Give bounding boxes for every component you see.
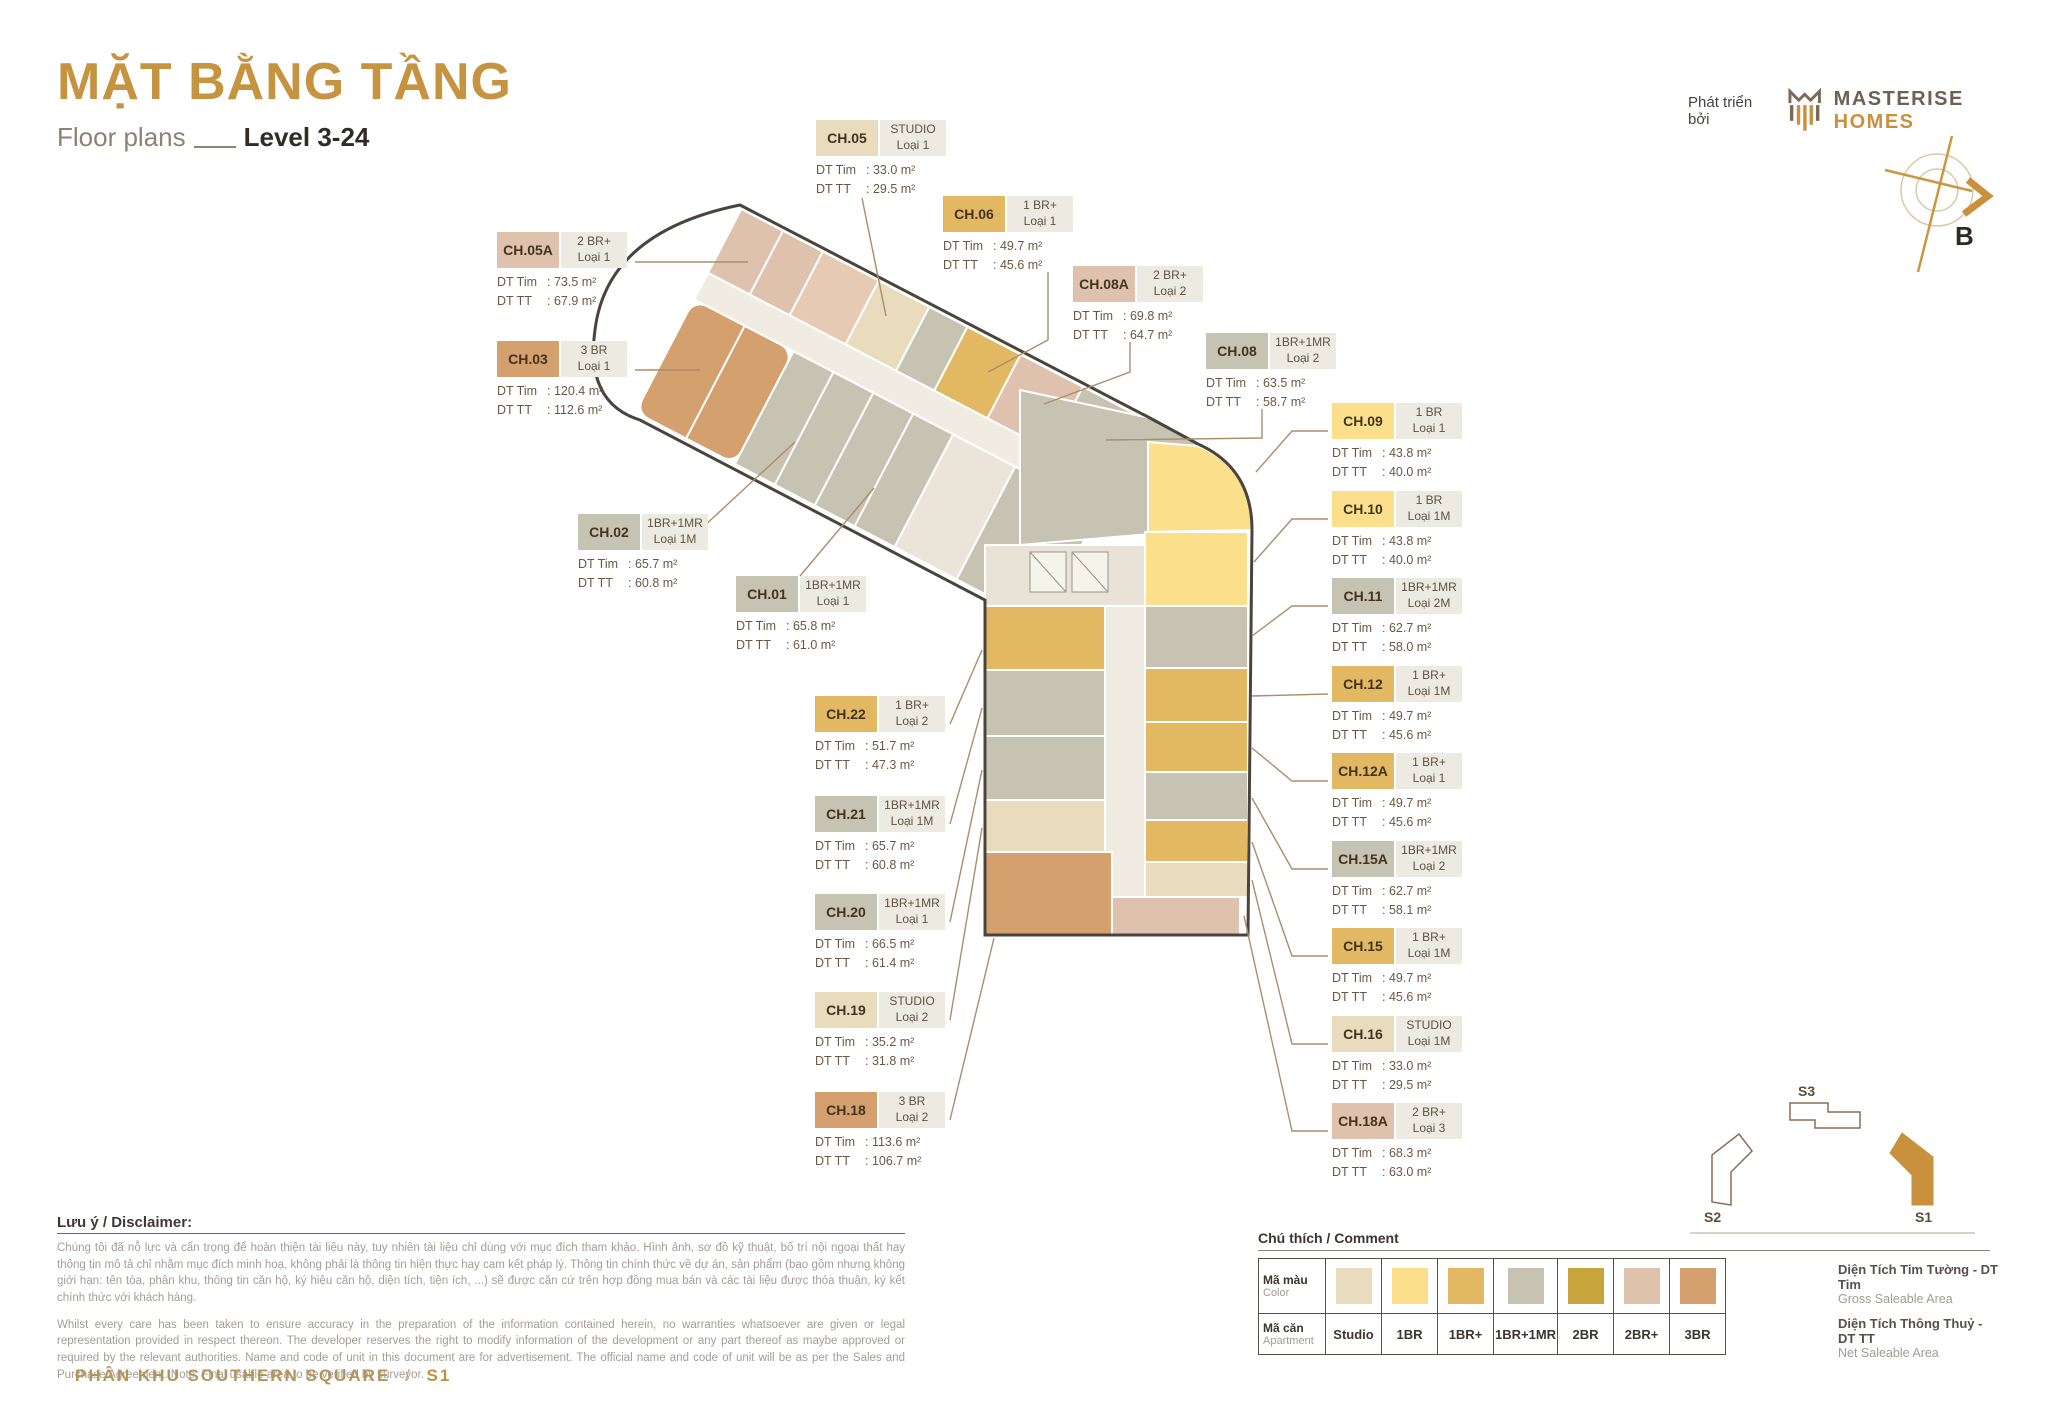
unit-head: CH.16STUDIOLoại 1M <box>1332 1016 1472 1052</box>
net-area-row: DT TT: 40.0 m² <box>1332 463 1472 482</box>
net-area-value: : 45.6 m² <box>1382 726 1431 745</box>
site-minimap: S3 S2 S1 <box>1690 1080 2000 1240</box>
unit-label-ch12a: CH.12A1 BR+Loại 1DT Tim: 49.7 m²DT TT: 4… <box>1332 753 1472 832</box>
net-area-label: DT TT <box>815 756 865 775</box>
unit-areas: DT Tim: 35.2 m²DT TT: 31.8 m² <box>815 1033 955 1071</box>
unit-type: 1BR+1MRLoại 2 <box>1270 333 1336 369</box>
net-area-label: DT TT <box>1073 326 1123 345</box>
unit-type-line2: Loại 2 <box>1287 351 1320 367</box>
net-area-row: DT TT: 60.8 m² <box>815 856 955 875</box>
gross-area-value: : 49.7 m² <box>1382 969 1431 988</box>
gross-area-value: : 33.0 m² <box>1382 1057 1431 1076</box>
net-area-label: DT TT <box>1332 463 1382 482</box>
footer-separator: / <box>397 1366 420 1385</box>
minimap-s3-shape <box>1790 1103 1860 1128</box>
net-area-row: DT TT: 45.6 m² <box>1332 988 1472 1007</box>
unit-areas: DT Tim: 68.3 m²DT TT: 63.0 m² <box>1332 1144 1472 1182</box>
area-note-en: Gross Saleable Area <box>1838 1292 1998 1306</box>
unit-type: 2 BR+Loại 2 <box>1137 266 1203 302</box>
area-note-vi: Diện Tích Tim Tường - DT Tim <box>1838 1262 1998 1292</box>
gross-area-label: DT Tim <box>1332 794 1382 813</box>
footer-zone: PHÂN KHU SOUTHERN SQUARE <box>75 1366 390 1385</box>
unit-type-line1: 2 BR+ <box>1153 268 1187 284</box>
gross-area-row: DT Tim: 43.8 m² <box>1332 532 1472 551</box>
net-area-label: DT TT <box>815 856 865 875</box>
gross-area-label: DT Tim <box>815 1133 865 1152</box>
unit-type-line2: Loại 1M <box>1408 684 1451 700</box>
gross-area-value: : 49.7 m² <box>1382 794 1431 813</box>
legend-apartment-row-label: Mã cănApartment <box>1259 1314 1326 1355</box>
gross-area-value: : 49.7 m² <box>1382 707 1431 726</box>
net-area-value: : 112.6 m² <box>547 401 602 420</box>
net-area-row: DT TT: 29.5 m² <box>1332 1076 1472 1095</box>
unit-label-ch19: CH.19STUDIOLoại 2DT Tim: 35.2 m²DT TT: 3… <box>815 992 955 1071</box>
unit-areas: DT Tim: 65.8 m²DT TT: 61.0 m² <box>736 617 876 655</box>
unit-type: 1BR+1MRLoại 2 <box>1396 841 1462 877</box>
unit-areas: DT Tim: 120.4 m²DT TT: 112.6 m² <box>497 382 637 420</box>
net-area-row: DT TT: 45.6 m² <box>1332 813 1472 832</box>
unit-areas: DT Tim: 63.5 m²DT TT: 58.7 m² <box>1206 374 1346 412</box>
net-area-label: DT TT <box>1332 901 1382 920</box>
unit-type-line2: Loại 1M <box>1408 1034 1451 1050</box>
gross-area-row: DT Tim: 65.8 m² <box>736 617 876 636</box>
unit-head: CH.211BR+1MRLoại 1M <box>815 796 955 832</box>
unit-label-ch02: CH.021BR+1MRLoại 1MDT Tim: 65.7 m²DT TT:… <box>578 514 718 593</box>
gross-area-value: : 73.5 m² <box>547 273 596 292</box>
unit-label-ch09: CH.091 BRLoại 1DT Tim: 43.8 m²DT TT: 40.… <box>1332 403 1472 482</box>
legend-swatch-1 <box>1392 1268 1428 1304</box>
gross-area-value: : 49.7 m² <box>993 237 1042 256</box>
net-area-row: DT TT: 58.0 m² <box>1332 638 1472 657</box>
gross-area-value: : 43.8 m² <box>1382 532 1431 551</box>
unit-type-line1: 2 BR+ <box>1412 1105 1446 1121</box>
net-area-row: DT TT: 29.5 m² <box>816 180 956 199</box>
floor-plan-page: MẶT BẰNG TẦNG Floor plans Level 3-24 Phá… <box>0 0 2048 1412</box>
legend-swatch-3 <box>1508 1268 1544 1304</box>
unit-areas: DT Tim: 43.8 m²DT TT: 40.0 m² <box>1332 444 1472 482</box>
unit-areas: DT Tim: 65.7 m²DT TT: 60.8 m² <box>578 555 718 593</box>
unit-type: 1 BR+Loại 2 <box>879 696 945 732</box>
gross-area-label: DT Tim <box>1332 619 1382 638</box>
unit-areas: DT Tim: 49.7 m²DT TT: 45.6 m² <box>1332 707 1472 745</box>
unit-label-ch06: CH.061 BR+Loại 1DT Tim: 49.7 m²DT TT: 45… <box>943 196 1083 275</box>
net-area-value: : 61.4 m² <box>865 954 914 973</box>
net-area-value: : 58.0 m² <box>1382 638 1431 657</box>
unit-type-line1: 1BR+1MR <box>1275 335 1331 351</box>
net-area-value: : 29.5 m² <box>1382 1076 1431 1095</box>
net-area-row: DT TT: 63.0 m² <box>1332 1163 1472 1182</box>
unit-type-line2: Loại 1 <box>578 250 611 266</box>
disclaimer-heading: Lưu ý / Disclaimer: <box>57 1214 905 1234</box>
unit-areas: DT Tim: 49.7 m²DT TT: 45.6 m² <box>1332 969 1472 1007</box>
net-area-value: : 106.7 m² <box>865 1152 921 1171</box>
legend-swatch-cell <box>1670 1259 1726 1314</box>
gross-area-label: DT Tim <box>1332 444 1382 463</box>
unit-type-line1: 1 BR+ <box>1412 755 1446 771</box>
unit-type-line2: Loại 1 <box>1413 771 1446 787</box>
unit-type-line2: Loại 2 <box>1413 859 1446 875</box>
unit-label-ch12: CH.121 BR+Loại 1MDT Tim: 49.7 m²DT TT: 4… <box>1332 666 1472 745</box>
gross-area-label: DT Tim <box>1332 1144 1382 1163</box>
gross-area-row: DT Tim: 35.2 m² <box>815 1033 955 1052</box>
disclaimer-text-vi: Chúng tôi đã nỗ lực và cẩn trọng để hoàn… <box>57 1240 905 1307</box>
unit-label-ch08a: CH.08A2 BR+Loại 2DT Tim: 69.8 m²DT TT: 6… <box>1073 266 1213 345</box>
gross-area-row: DT Tim: 49.7 m² <box>943 237 1083 256</box>
area-note-vi: Diện Tích Thông Thuỷ - DT TT <box>1838 1316 1998 1346</box>
unit-head: CH.111BR+1MRLoại 2M <box>1332 578 1472 614</box>
gross-area-row: DT Tim: 51.7 m² <box>815 737 955 756</box>
gross-area-value: : 62.7 m² <box>1382 882 1431 901</box>
unit-type-line2: Loại 2 <box>896 714 929 730</box>
unit-code: CH.12 <box>1332 666 1394 702</box>
gross-area-label: DT Tim <box>1332 882 1382 901</box>
unit-head: CH.183 BRLoại 2 <box>815 1092 955 1128</box>
unit-head: CH.011BR+1MRLoại 1 <box>736 576 876 612</box>
unit-head: CH.121 BR+Loại 1M <box>1332 666 1472 702</box>
net-area-row: DT TT: 58.1 m² <box>1332 901 1472 920</box>
unit-areas: DT Tim: 49.7 m²DT TT: 45.6 m² <box>943 237 1083 275</box>
unit-type-line2: Loại 1 <box>896 912 929 928</box>
gross-area-row: DT Tim: 62.7 m² <box>1332 882 1472 901</box>
gross-area-label: DT Tim <box>815 935 865 954</box>
unit-type: 1 BR+Loại 1 <box>1396 753 1462 789</box>
gross-area-row: DT Tim: 69.8 m² <box>1073 307 1213 326</box>
net-area-row: DT TT: 61.4 m² <box>815 954 955 973</box>
unit-type-line2: Loại 2 <box>896 1110 929 1126</box>
unit-type-line1: 3 BR <box>581 343 608 359</box>
unit-code: CH.03 <box>497 341 559 377</box>
gross-area-value: : 63.5 m² <box>1256 374 1305 393</box>
legend-type-name: Studio <box>1326 1314 1382 1355</box>
gross-area-row: DT Tim: 33.0 m² <box>1332 1057 1472 1076</box>
net-area-value: : 64.7 m² <box>1123 326 1172 345</box>
unit-label-ch03: CH.033 BRLoại 1DT Tim: 120.4 m²DT TT: 11… <box>497 341 637 420</box>
unit-areas: DT Tim: 51.7 m²DT TT: 47.3 m² <box>815 737 955 775</box>
unit-code: CH.09 <box>1332 403 1394 439</box>
unit-type-line2: Loại 2 <box>1154 284 1187 300</box>
area-note-en: Net Saleable Area <box>1838 1346 1998 1360</box>
unit-code: CH.16 <box>1332 1016 1394 1052</box>
gross-area-label: DT Tim <box>815 837 865 856</box>
net-area-row: DT TT: 67.9 m² <box>497 292 637 311</box>
net-area-value: : 40.0 m² <box>1382 551 1431 570</box>
gross-area-label: DT Tim <box>816 161 866 180</box>
gross-area-label: DT Tim <box>736 617 786 636</box>
footer-block: S1 <box>427 1366 452 1385</box>
net-area-value: : 63.0 m² <box>1382 1163 1431 1182</box>
net-area-value: : 60.8 m² <box>628 574 677 593</box>
unit-type-line2: Loại 2M <box>1408 596 1451 612</box>
net-area-value: : 58.7 m² <box>1256 393 1305 412</box>
unit-label-ch01: CH.011BR+1MRLoại 1DT Tim: 65.8 m²DT TT: … <box>736 576 876 655</box>
net-area-value: : 58.1 m² <box>1382 901 1431 920</box>
gross-area-label: DT Tim <box>1073 307 1123 326</box>
legend-swatch-5 <box>1624 1268 1660 1304</box>
unit-code: CH.02 <box>578 514 640 550</box>
unit-type: 2 BR+Loại 1 <box>561 232 627 268</box>
unit-type: 1 BR+Loại 1M <box>1396 928 1462 964</box>
gross-area-row: DT Tim: 33.0 m² <box>816 161 956 180</box>
unit-label-ch18: CH.183 BRLoại 2DT Tim: 113.6 m²DT TT: 10… <box>815 1092 955 1171</box>
unit-type-line2: Loại 1 <box>897 138 930 154</box>
gross-area-row: DT Tim: 49.7 m² <box>1332 707 1472 726</box>
net-area-row: DT TT: 61.0 m² <box>736 636 876 655</box>
unit-code: CH.08A <box>1073 266 1135 302</box>
unit-label-ch21: CH.211BR+1MRLoại 1MDT Tim: 65.7 m²DT TT:… <box>815 796 955 875</box>
gross-area-row: DT Tim: 62.7 m² <box>1332 619 1472 638</box>
unit-code: CH.12A <box>1332 753 1394 789</box>
unit-type: 1 BRLoại 1 <box>1396 403 1462 439</box>
unit-label-ch16: CH.16STUDIOLoại 1MDT Tim: 33.0 m²DT TT: … <box>1332 1016 1472 1095</box>
legend-table: Mã màuColorMã cănApartmentStudio1BR1BR+1… <box>1258 1258 1726 1355</box>
unit-type: STUDIOLoại 2 <box>879 992 945 1028</box>
gross-area-label: DT Tim <box>1206 374 1256 393</box>
unit-type-line1: 1 BR+ <box>1412 930 1446 946</box>
legend-type-name: 2BR+ <box>1614 1314 1670 1355</box>
unit-label-ch08: CH.081BR+1MRLoại 2DT Tim: 63.5 m²DT TT: … <box>1206 333 1346 412</box>
gross-area-row: DT Tim: 73.5 m² <box>497 273 637 292</box>
net-area-row: DT TT: 45.6 m² <box>1332 726 1472 745</box>
legend-swatch-6 <box>1680 1268 1716 1304</box>
legend-swatch-cell <box>1382 1259 1438 1314</box>
gross-area-label: DT Tim <box>815 737 865 756</box>
gross-area-value: : 51.7 m² <box>865 737 914 756</box>
gross-area-label: DT Tim <box>1332 969 1382 988</box>
unit-code: CH.15A <box>1332 841 1394 877</box>
net-area-label: DT TT <box>1332 813 1382 832</box>
gross-area-value: : 65.7 m² <box>865 837 914 856</box>
net-area-label: DT TT <box>497 401 547 420</box>
unit-head: CH.05STUDIOLoại 1 <box>816 120 956 156</box>
net-area-label: DT TT <box>815 954 865 973</box>
gross-area-label: DT Tim <box>815 1033 865 1052</box>
unit-type-line2: Loại 1 <box>817 594 850 610</box>
unit-type-line2: Loại 1M <box>1408 509 1451 525</box>
unit-type-line2: Loại 3 <box>1413 1121 1446 1137</box>
unit-head: CH.201BR+1MRLoại 1 <box>815 894 955 930</box>
gross-area-row: DT Tim: 65.7 m² <box>578 555 718 574</box>
gross-area-value: : 69.8 m² <box>1123 307 1172 326</box>
unit-label-ch11: CH.111BR+1MRLoại 2MDT Tim: 62.7 m²DT TT:… <box>1332 578 1472 657</box>
unit-type: 1 BR+Loại 1 <box>1007 196 1073 232</box>
unit-areas: DT Tim: 33.0 m²DT TT: 29.5 m² <box>1332 1057 1472 1095</box>
unit-code: CH.08 <box>1206 333 1268 369</box>
net-area-label: DT TT <box>1332 988 1382 1007</box>
unit-head: CH.18A2 BR+Loại 3 <box>1332 1103 1472 1139</box>
unit-head: CH.15A1BR+1MRLoại 2 <box>1332 841 1472 877</box>
net-area-label: DT TT <box>1332 638 1382 657</box>
net-area-value: : 45.6 m² <box>993 256 1042 275</box>
unit-code: CH.06 <box>943 196 1005 232</box>
unit-areas: DT Tim: 73.5 m²DT TT: 67.9 m² <box>497 273 637 311</box>
legend-type-name: 2BR <box>1558 1314 1614 1355</box>
legend-type-name: 1BR <box>1382 1314 1438 1355</box>
unit-code: CH.05A <box>497 232 559 268</box>
legend-swatch-cell <box>1558 1259 1614 1314</box>
legend-swatch-cell <box>1326 1259 1382 1314</box>
net-area-value: : 47.3 m² <box>865 756 914 775</box>
net-area-label: DT TT <box>815 1052 865 1071</box>
minimap-s2-label: S2 <box>1704 1209 1721 1225</box>
gross-area-label: DT Tim <box>497 382 547 401</box>
gross-area-row: DT Tim: 113.6 m² <box>815 1133 955 1152</box>
legend-type-name: 3BR <box>1670 1314 1726 1355</box>
gross-area-row: DT Tim: 68.3 m² <box>1332 1144 1472 1163</box>
net-area-value: : 45.6 m² <box>1382 813 1431 832</box>
net-area-label: DT TT <box>816 180 866 199</box>
legend-color-row-label: Mã màuColor <box>1259 1259 1326 1314</box>
net-area-label: DT TT <box>736 636 786 655</box>
footer-breadcrumb: PHÂN KHU SOUTHERN SQUARE / S1 <box>75 1366 451 1386</box>
legend-swatch-cell <box>1614 1259 1670 1314</box>
net-area-value: : 45.6 m² <box>1382 988 1431 1007</box>
net-area-row: DT TT: 64.7 m² <box>1073 326 1213 345</box>
minimap-s1-shape <box>1890 1133 1933 1205</box>
legend-type-name: 1BR+ <box>1438 1314 1494 1355</box>
unit-type-line1: 1BR+1MR <box>1401 580 1457 596</box>
gross-area-label: DT Tim <box>497 273 547 292</box>
gross-area-row: DT Tim: 49.7 m² <box>1332 969 1472 988</box>
gross-area-label: DT Tim <box>578 555 628 574</box>
area-notes: Diện Tích Tim Tường - DT TimGross Saleab… <box>1838 1262 1998 1370</box>
legend-swatch-4 <box>1568 1268 1604 1304</box>
unit-type: 1 BRLoại 1M <box>1396 491 1462 527</box>
gross-area-row: DT Tim: 43.8 m² <box>1332 444 1472 463</box>
unit-label-ch10: CH.101 BRLoại 1MDT Tim: 43.8 m²DT TT: 40… <box>1332 491 1472 570</box>
unit-type-line1: 2 BR+ <box>577 234 611 250</box>
unit-type-line1: 1 BR <box>1416 493 1443 509</box>
unit-type-line1: 3 BR <box>899 1094 926 1110</box>
unit-head: CH.221 BR+Loại 2 <box>815 696 955 732</box>
unit-head: CH.101 BRLoại 1M <box>1332 491 1472 527</box>
unit-label-ch20: CH.201BR+1MRLoại 1DT Tim: 66.5 m²DT TT: … <box>815 894 955 973</box>
unit-areas: DT Tim: 33.0 m²DT TT: 29.5 m² <box>816 161 956 199</box>
unit-type-line2: Loại 1M <box>891 814 934 830</box>
minimap-s2-shape <box>1712 1134 1752 1205</box>
net-area-label: DT TT <box>578 574 628 593</box>
unit-code: CH.18 <box>815 1092 877 1128</box>
net-area-row: DT TT: 106.7 m² <box>815 1152 955 1171</box>
legend-swatch-0 <box>1336 1268 1372 1304</box>
unit-type-line1: STUDIO <box>889 994 934 1010</box>
net-area-value: : 61.0 m² <box>786 636 835 655</box>
gross-area-row: DT Tim: 65.7 m² <box>815 837 955 856</box>
net-area-value: : 29.5 m² <box>866 180 915 199</box>
unit-areas: DT Tim: 62.7 m²DT TT: 58.0 m² <box>1332 619 1472 657</box>
unit-type-line1: 1BR+1MR <box>1401 843 1457 859</box>
unit-type-line1: 1BR+1MR <box>884 798 940 814</box>
unit-areas: DT Tim: 62.7 m²DT TT: 58.1 m² <box>1332 882 1472 920</box>
unit-type-line2: Loại 1 <box>578 359 611 375</box>
unit-type-line1: 1BR+1MR <box>805 578 861 594</box>
unit-type-line2: Loại 1M <box>654 532 697 548</box>
net-area-row: DT TT: 112.6 m² <box>497 401 637 420</box>
net-area-value: : 60.8 m² <box>865 856 914 875</box>
unit-head: CH.12A1 BR+Loại 1 <box>1332 753 1472 789</box>
unit-label-ch05: CH.05STUDIOLoại 1DT Tim: 33.0 m²DT TT: 2… <box>816 120 956 199</box>
unit-type: 1BR+1MRLoại 1 <box>800 576 866 612</box>
unit-code: CH.01 <box>736 576 798 612</box>
unit-code: CH.20 <box>815 894 877 930</box>
unit-type: STUDIOLoại 1M <box>1396 1016 1462 1052</box>
unit-code: CH.10 <box>1332 491 1394 527</box>
net-area-label: DT TT <box>1332 551 1382 570</box>
unit-label-ch05a: CH.05A2 BR+Loại 1DT Tim: 73.5 m²DT TT: 6… <box>497 232 637 311</box>
net-area-row: DT TT: 60.8 m² <box>578 574 718 593</box>
gross-area-value: : 68.3 m² <box>1382 1144 1431 1163</box>
net-area-label: DT TT <box>497 292 547 311</box>
net-area-row: DT TT: 58.7 m² <box>1206 393 1346 412</box>
unit-type-line1: 1BR+1MR <box>647 516 703 532</box>
gross-area-value: : 43.8 m² <box>1382 444 1431 463</box>
net-area-label: DT TT <box>1332 1076 1382 1095</box>
unit-label-ch22: CH.221 BR+Loại 2DT Tim: 51.7 m²DT TT: 47… <box>815 696 955 775</box>
unit-type-line2: Loại 2 <box>896 1010 929 1026</box>
unit-head: CH.081BR+1MRLoại 2 <box>1206 333 1346 369</box>
gross-area-label: DT Tim <box>1332 707 1382 726</box>
gross-area-row: DT Tim: 66.5 m² <box>815 935 955 954</box>
unit-label-ch15a: CH.15A1BR+1MRLoại 2DT Tim: 62.7 m²DT TT:… <box>1332 841 1472 920</box>
unit-type: STUDIOLoại 1 <box>880 120 946 156</box>
unit-type: 1BR+1MRLoại 1M <box>642 514 708 550</box>
unit-areas: DT Tim: 66.5 m²DT TT: 61.4 m² <box>815 935 955 973</box>
legend-type-name: 1BR+1MR <box>1494 1314 1558 1355</box>
legend-swatch-2 <box>1448 1268 1484 1304</box>
unit-areas: DT Tim: 43.8 m²DT TT: 40.0 m² <box>1332 532 1472 570</box>
unit-type-line1: STUDIO <box>890 122 935 138</box>
unit-type-line1: 1 BR+ <box>1412 668 1446 684</box>
net-area-label: DT TT <box>1332 726 1382 745</box>
gross-area-value: : 35.2 m² <box>865 1033 914 1052</box>
unit-code: CH.18A <box>1332 1103 1394 1139</box>
legend-swatch-cell <box>1438 1259 1494 1314</box>
gross-area-label: DT Tim <box>1332 532 1382 551</box>
minimap-s3-label: S3 <box>1798 1083 1815 1099</box>
unit-head: CH.091 BRLoại 1 <box>1332 403 1472 439</box>
unit-areas: DT Tim: 49.7 m²DT TT: 45.6 m² <box>1332 794 1472 832</box>
net-area-row: DT TT: 47.3 m² <box>815 756 955 775</box>
net-area-row: DT TT: 45.6 m² <box>943 256 1083 275</box>
unit-type-line1: STUDIO <box>1406 1018 1451 1034</box>
gross-area-value: : 65.8 m² <box>786 617 835 636</box>
plan-tower <box>985 390 1252 935</box>
unit-type: 3 BRLoại 2 <box>879 1092 945 1128</box>
unit-areas: DT Tim: 65.7 m²DT TT: 60.8 m² <box>815 837 955 875</box>
unit-code: CH.19 <box>815 992 877 1028</box>
gross-area-value: : 33.0 m² <box>866 161 915 180</box>
unit-label-ch18a: CH.18A2 BR+Loại 3DT Tim: 68.3 m²DT TT: 6… <box>1332 1103 1472 1182</box>
net-area-label: DT TT <box>1332 1163 1382 1182</box>
unit-type: 3 BRLoại 1 <box>561 341 627 377</box>
unit-code: CH.15 <box>1332 928 1394 964</box>
unit-head: CH.05A2 BR+Loại 1 <box>497 232 637 268</box>
unit-type: 1BR+1MRLoại 2M <box>1396 578 1462 614</box>
net-area-row: DT TT: 31.8 m² <box>815 1052 955 1071</box>
net-area-label: DT TT <box>1206 393 1256 412</box>
unit-head: CH.08A2 BR+Loại 2 <box>1073 266 1213 302</box>
unit-code: CH.05 <box>816 120 878 156</box>
net-area-value: : 40.0 m² <box>1382 463 1431 482</box>
unit-type: 1BR+1MRLoại 1M <box>879 796 945 832</box>
unit-areas: DT Tim: 113.6 m²DT TT: 106.7 m² <box>815 1133 955 1171</box>
unit-head: CH.151 BR+Loại 1M <box>1332 928 1472 964</box>
unit-type-line1: 1BR+1MR <box>884 896 940 912</box>
unit-head: CH.021BR+1MRLoại 1M <box>578 514 718 550</box>
net-area-row: DT TT: 40.0 m² <box>1332 551 1472 570</box>
gross-area-row: DT Tim: 49.7 m² <box>1332 794 1472 813</box>
unit-type-line2: Loại 1M <box>1408 946 1451 962</box>
net-area-label: DT TT <box>815 1152 865 1171</box>
